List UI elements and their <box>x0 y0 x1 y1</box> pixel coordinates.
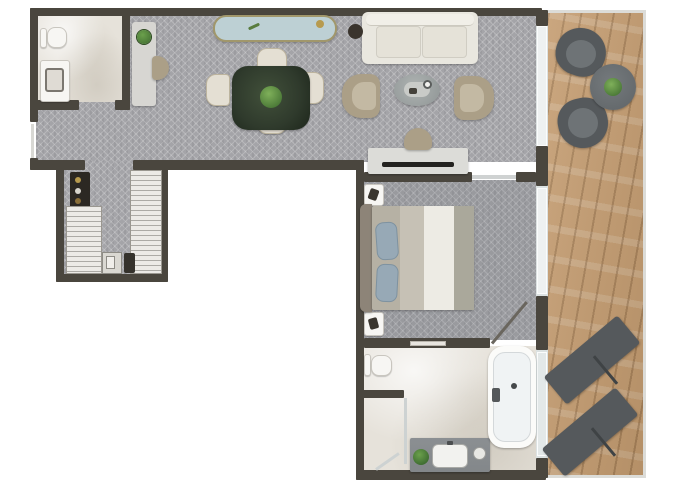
vanity-plant <box>413 449 429 465</box>
wall-segment <box>536 146 548 186</box>
wall-bedroom-top-post <box>516 172 536 182</box>
shower-glass-panel <box>404 398 407 464</box>
armchair-right-seat <box>460 84 484 112</box>
bench-gold-decor <box>316 20 324 28</box>
minibar-bottle <box>75 198 81 204</box>
entry-door <box>31 124 34 158</box>
coffee-table-cup <box>423 80 432 89</box>
wall-shower <box>356 390 404 398</box>
floor-plan <box>0 0 680 486</box>
wall-guestbath-right <box>122 8 130 110</box>
desk-chair <box>404 128 432 150</box>
wall-guestbath-bottom-b <box>115 100 130 110</box>
luggage-case <box>124 253 135 273</box>
guest-toilet-tank <box>40 28 47 48</box>
table-centerpiece-plant <box>260 86 282 108</box>
bed-pillow-top <box>375 221 400 260</box>
bedroom-pocket-door <box>472 175 516 179</box>
sofa-backrest <box>366 14 474 26</box>
toilet-tank <box>364 354 371 376</box>
terrace-chair-bottom-seat <box>568 108 598 138</box>
terrace-chair-top-seat <box>566 40 596 68</box>
wall-closet-bottom <box>56 274 168 282</box>
bedroom-sliding-door <box>537 188 547 294</box>
minibar-bottle <box>75 188 81 194</box>
bed-headboard <box>360 204 372 312</box>
vanity-jar <box>473 447 486 460</box>
console-plant <box>137 30 151 44</box>
guest-toilet-bowl <box>47 27 67 48</box>
bed-pillow-bottom <box>375 263 399 302</box>
guest-sink <box>45 68 64 92</box>
vanity-faucet <box>447 441 453 445</box>
toilet-bowl <box>371 355 392 376</box>
wardrobe-left <box>66 206 102 274</box>
bed-runner <box>424 206 454 310</box>
dining-chair-left <box>206 74 230 106</box>
tv-desk <box>368 148 468 174</box>
safe-door-panel <box>106 256 115 269</box>
sofa-cushion-left <box>376 26 421 58</box>
towel-shelf <box>410 341 446 346</box>
coffee-table-dish <box>409 88 417 94</box>
bathtub-faucet <box>492 388 500 402</box>
bed-sheet-fold <box>400 206 424 310</box>
wall-segment <box>536 296 548 350</box>
wall-closet-left <box>56 160 64 282</box>
minibar-bottle <box>75 177 81 183</box>
terrace-table-plant <box>604 78 622 96</box>
living-room-sliding-door <box>537 26 547 146</box>
bathroom-window <box>537 352 547 456</box>
bathtub-handle <box>511 383 517 389</box>
sofa-cushion-right <box>422 26 467 58</box>
bed-foot-blanket <box>454 206 474 310</box>
tv <box>382 162 454 167</box>
vanity-sink <box>432 444 468 468</box>
armchair-left-seat <box>352 82 376 110</box>
sofa-side-table <box>348 24 363 39</box>
